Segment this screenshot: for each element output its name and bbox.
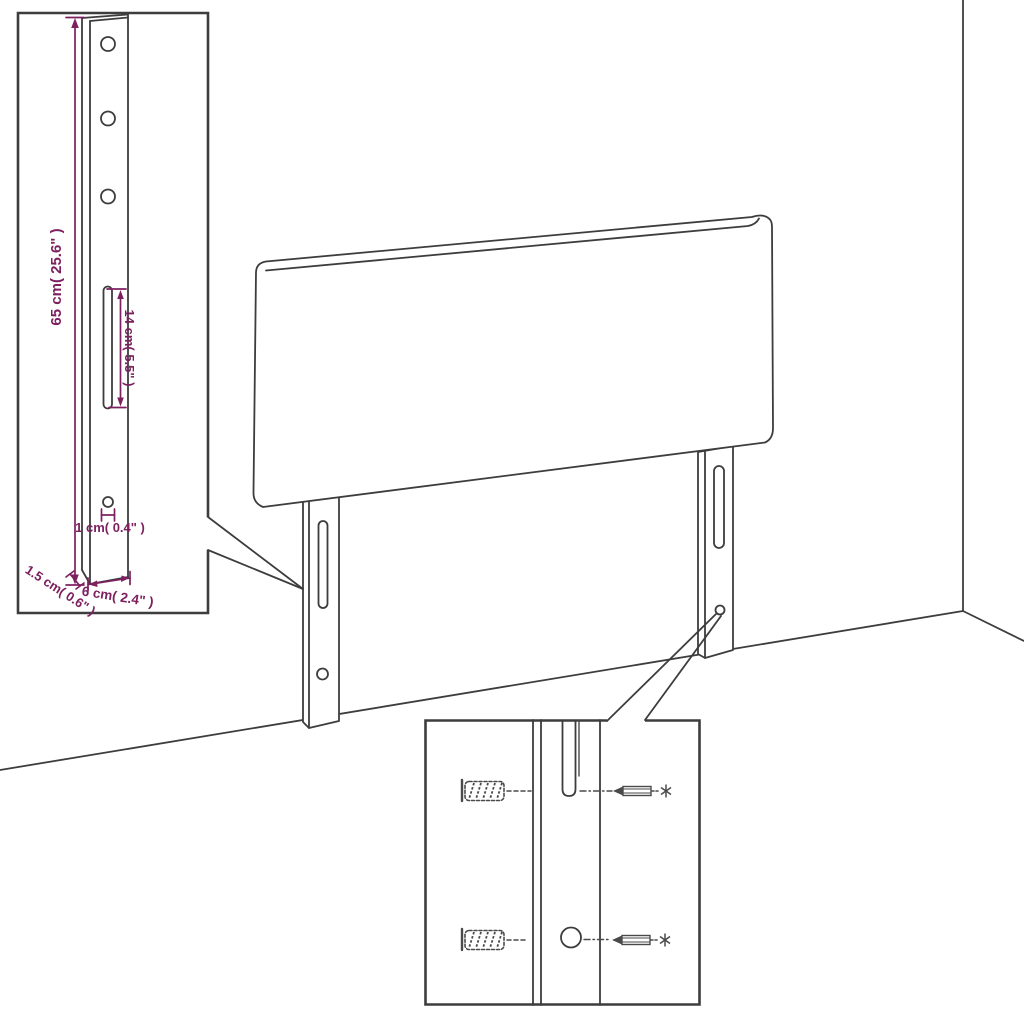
headboard-dimension-diagram: 65 cm( 25.6" ) 14 cm( 5.5" ) 1 cm( 0.4" …: [0, 0, 1024, 1024]
leg-height-label: 65 cm( 25.6" ): [48, 228, 65, 325]
detail-box-bottom: [425, 614, 721, 1005]
floor-line-right: [963, 611, 1024, 641]
left-leg-slot: [319, 521, 328, 608]
headboard-outline: [253, 215, 773, 507]
hole-diameter-label: 1 cm( 0.4" ): [75, 520, 145, 535]
callout-line-lower: [208, 550, 303, 589]
headboard-left-leg: [303, 495, 339, 728]
diagram-stage: 65 cm( 25.6" ) 14 cm( 5.5" ) 1 cm( 0.4" …: [0, 0, 1024, 1024]
callout-line-right: [645, 616, 721, 720]
right-leg-slot: [714, 466, 724, 548]
slot-length-label: 14 cm( 5.5" ): [122, 310, 137, 387]
callout-line-upper: [208, 517, 303, 589]
headboard-panel: [253, 215, 773, 507]
